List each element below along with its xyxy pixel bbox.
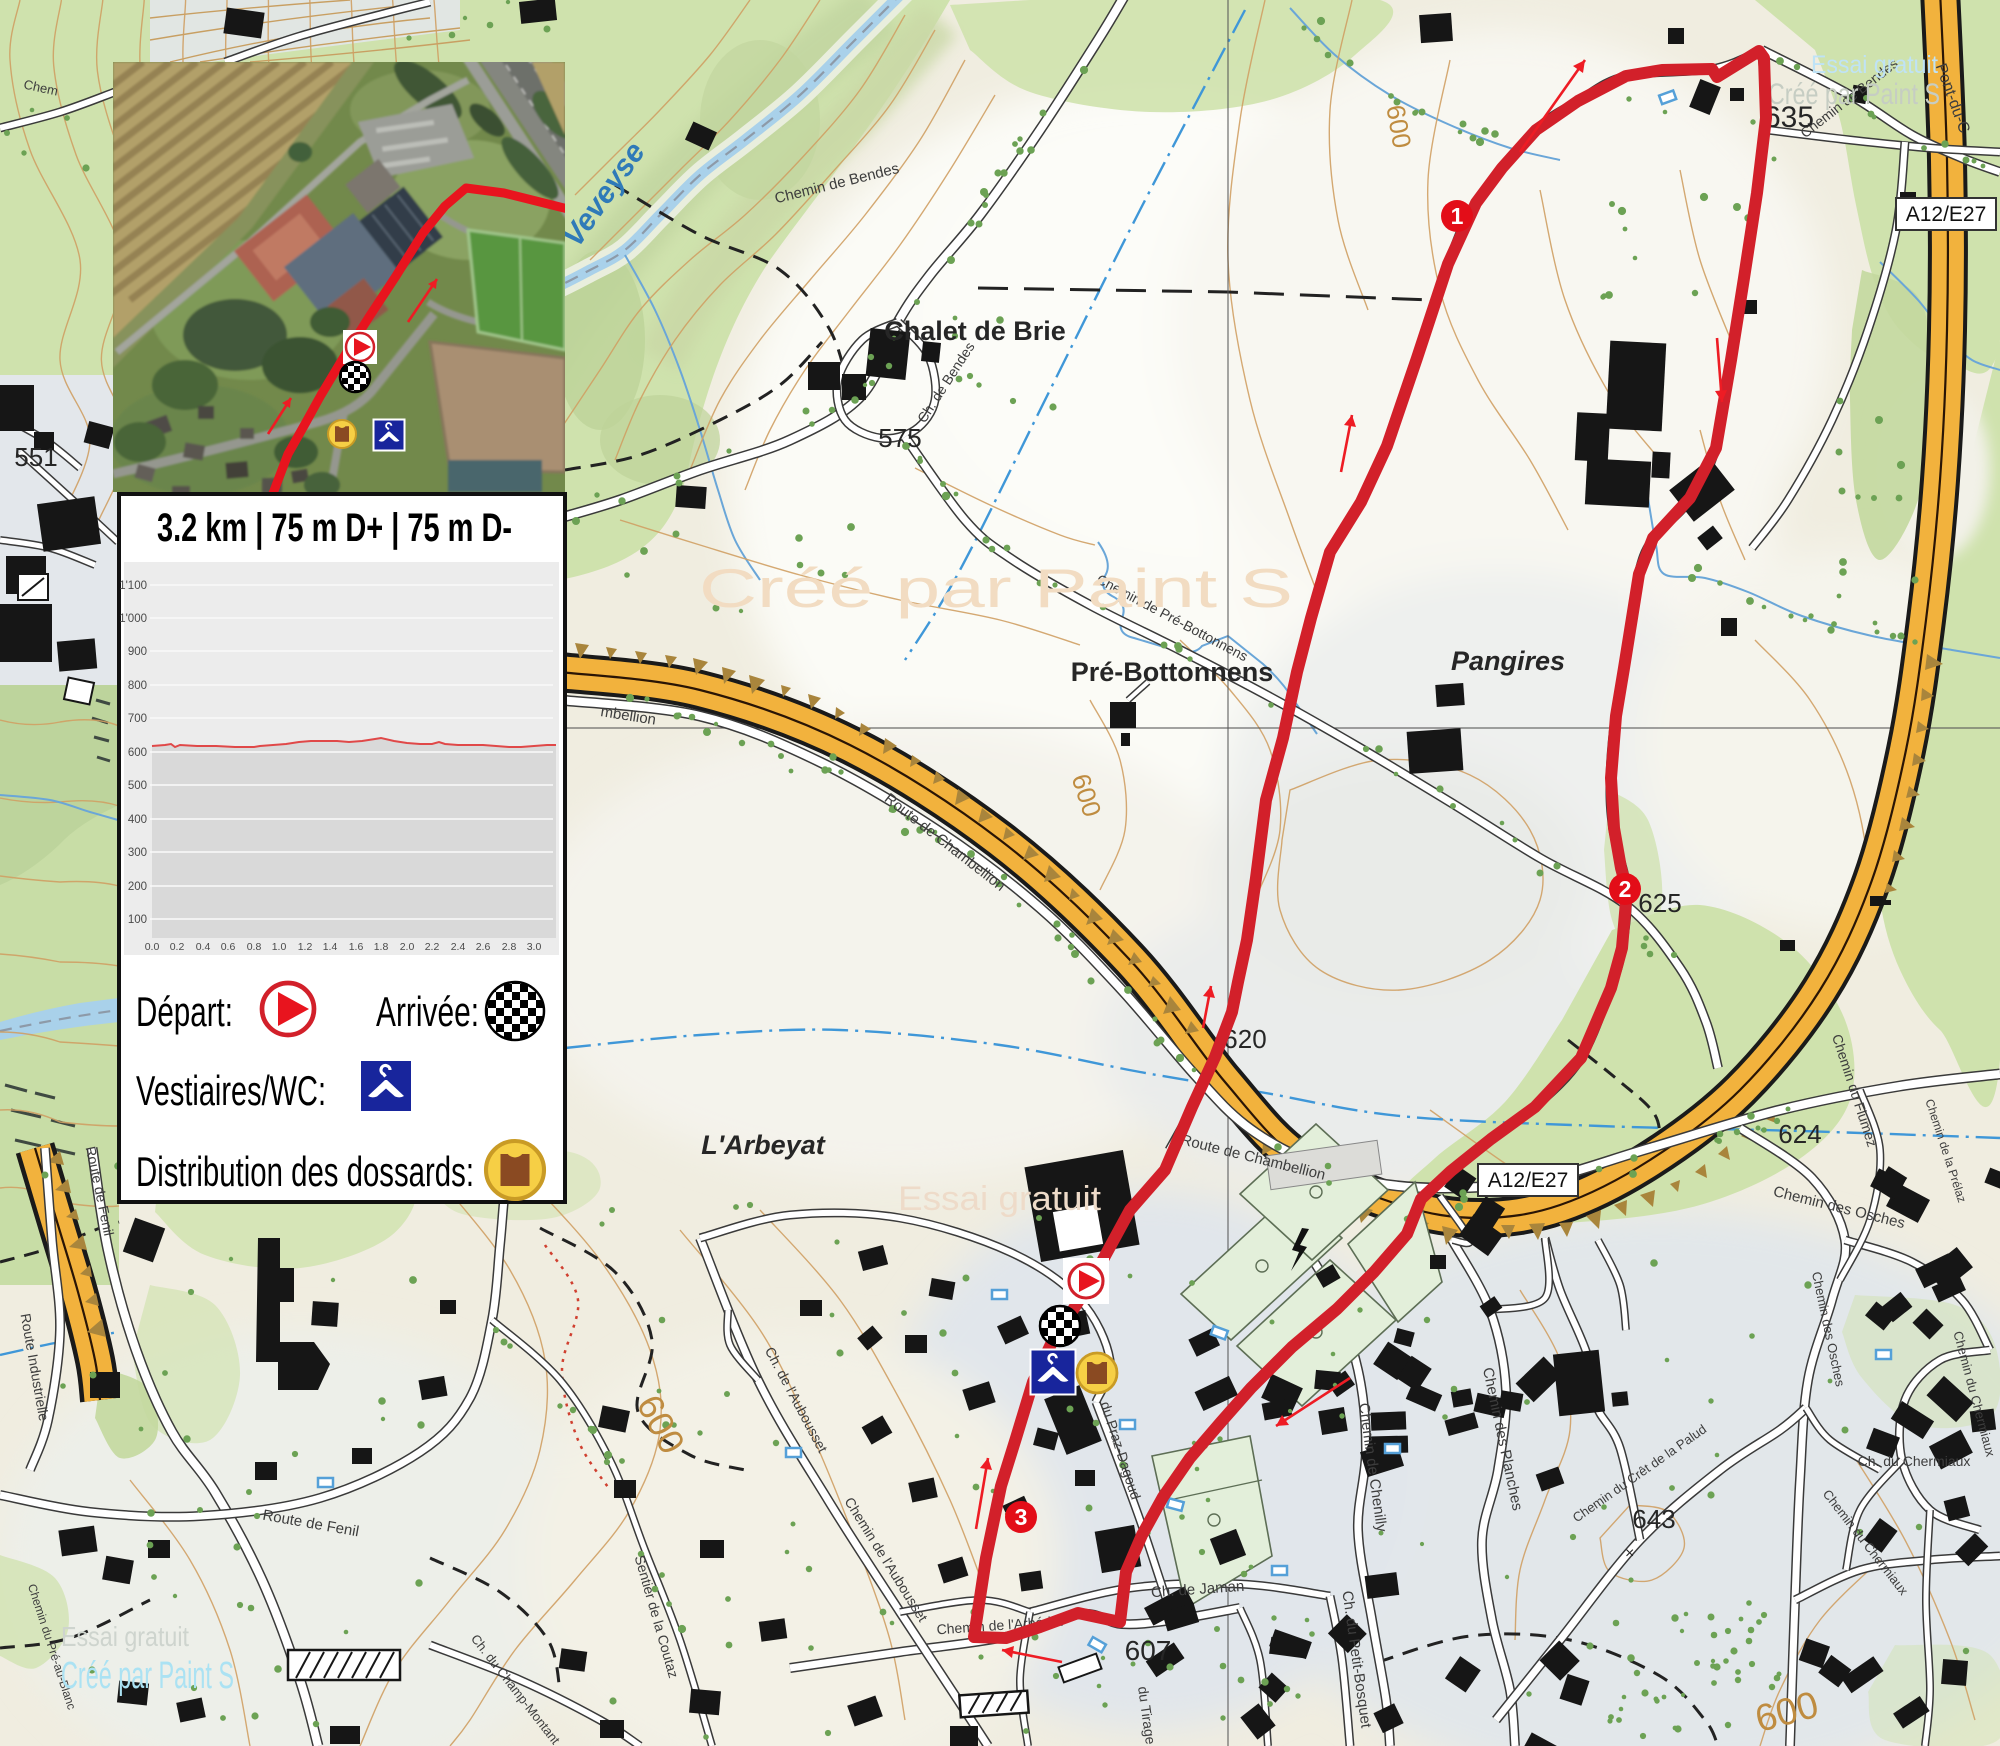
svg-text:Créé par Paint S: Créé par Paint S (1768, 78, 1940, 111)
svg-text:×: × (1625, 1545, 1634, 1562)
svg-text:2: 2 (1619, 876, 1632, 902)
svg-text:3.0: 3.0 (527, 941, 542, 953)
svg-text:1'100: 1'100 (119, 580, 147, 592)
svg-text:200: 200 (128, 881, 147, 893)
svg-text:0.0: 0.0 (145, 941, 160, 953)
svg-text:1.2: 1.2 (298, 941, 313, 953)
svg-text:Créé par Paint S: Créé par Paint S (699, 557, 1293, 619)
svg-text:700: 700 (128, 713, 147, 725)
svg-text:643: 643 (1632, 1504, 1675, 1534)
svg-text:2.8: 2.8 (502, 941, 517, 953)
svg-text:3: 3 (1015, 1504, 1028, 1530)
svg-text:2.4: 2.4 (451, 941, 466, 953)
svg-text:Départ:: Départ: (136, 988, 233, 1035)
svg-text:1: 1 (1451, 203, 1464, 229)
svg-text:Chalet de Brie: Chalet de Brie (884, 316, 1066, 346)
svg-text:624: 624 (1778, 1119, 1821, 1149)
svg-text:500: 500 (128, 780, 147, 792)
svg-text:551: 551 (14, 442, 57, 472)
svg-text:Essai gratuit: Essai gratuit (61, 1621, 189, 1652)
svg-text:1.0: 1.0 (272, 941, 287, 953)
svg-text:575: 575 (878, 423, 921, 453)
svg-text:2.2: 2.2 (425, 941, 440, 953)
svg-text:625: 625 (1638, 888, 1681, 918)
svg-text:1.8: 1.8 (374, 941, 389, 953)
svg-text:Essai gratuit: Essai gratuit (1811, 51, 1938, 79)
svg-text:0.6: 0.6 (221, 941, 236, 953)
svg-text:A12/E27: A12/E27 (1488, 1169, 1569, 1192)
svg-text:2.0: 2.0 (400, 941, 415, 953)
svg-text:A12/E27: A12/E27 (1906, 203, 1987, 226)
svg-text:1.6: 1.6 (349, 941, 364, 953)
svg-text:Vestiaires/WC:: Vestiaires/WC: (136, 1067, 326, 1114)
svg-text:Arrivée:: Arrivée: (376, 988, 479, 1035)
svg-text:0.8: 0.8 (247, 941, 262, 953)
svg-text:600: 600 (128, 747, 147, 759)
svg-text:Ch. du Chermiaux: Ch. du Chermiaux (1858, 1453, 1971, 1469)
svg-text:L'Arbeyat: L'Arbeyat (701, 1130, 825, 1160)
svg-text:Pangires: Pangires (1451, 646, 1565, 676)
svg-text:0.4: 0.4 (196, 941, 211, 953)
svg-text:400: 400 (128, 814, 147, 826)
svg-text:800: 800 (128, 680, 147, 692)
svg-text:300: 300 (128, 847, 147, 859)
svg-text:1.4: 1.4 (323, 941, 338, 953)
svg-text:607: 607 (1125, 1635, 1172, 1666)
svg-text:Pré-Bottonnens: Pré-Bottonnens (1071, 657, 1274, 687)
svg-text:Créé par Paint S: Créé par Paint S (61, 1655, 234, 1697)
svg-text:3.2 km | 75 m D+ | 75 m D-: 3.2 km | 75 m D+ | 75 m D- (157, 506, 512, 550)
svg-text:1'000: 1'000 (119, 613, 147, 625)
svg-text:2.6: 2.6 (476, 941, 491, 953)
svg-text:Essai gratuit: Essai gratuit (898, 1180, 1102, 1218)
svg-text:0.2: 0.2 (170, 941, 185, 953)
svg-text:100: 100 (128, 914, 147, 926)
svg-text:900: 900 (128, 646, 147, 658)
svg-text:Distribution des dossards:: Distribution des dossards: (136, 1148, 474, 1195)
